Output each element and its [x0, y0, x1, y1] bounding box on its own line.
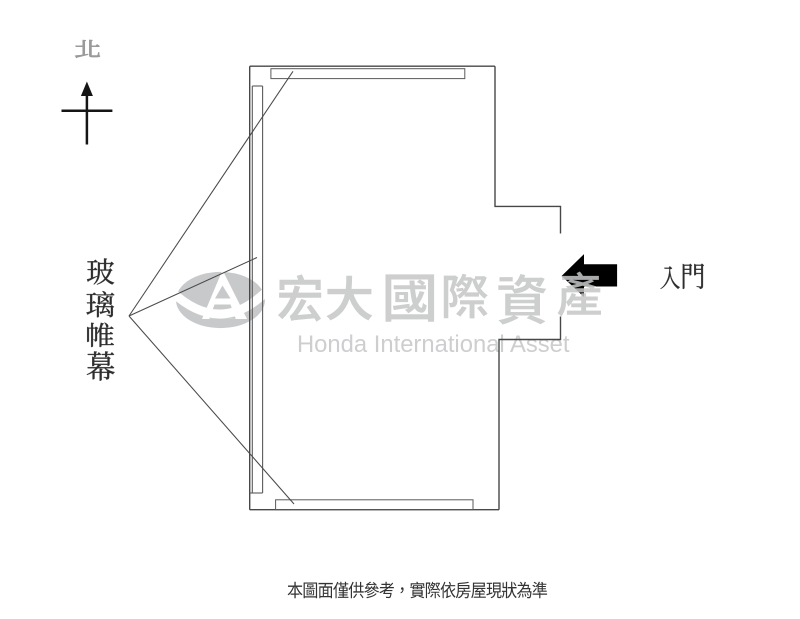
svg-text:Honda International Asset: Honda International Asset [297, 331, 570, 358]
